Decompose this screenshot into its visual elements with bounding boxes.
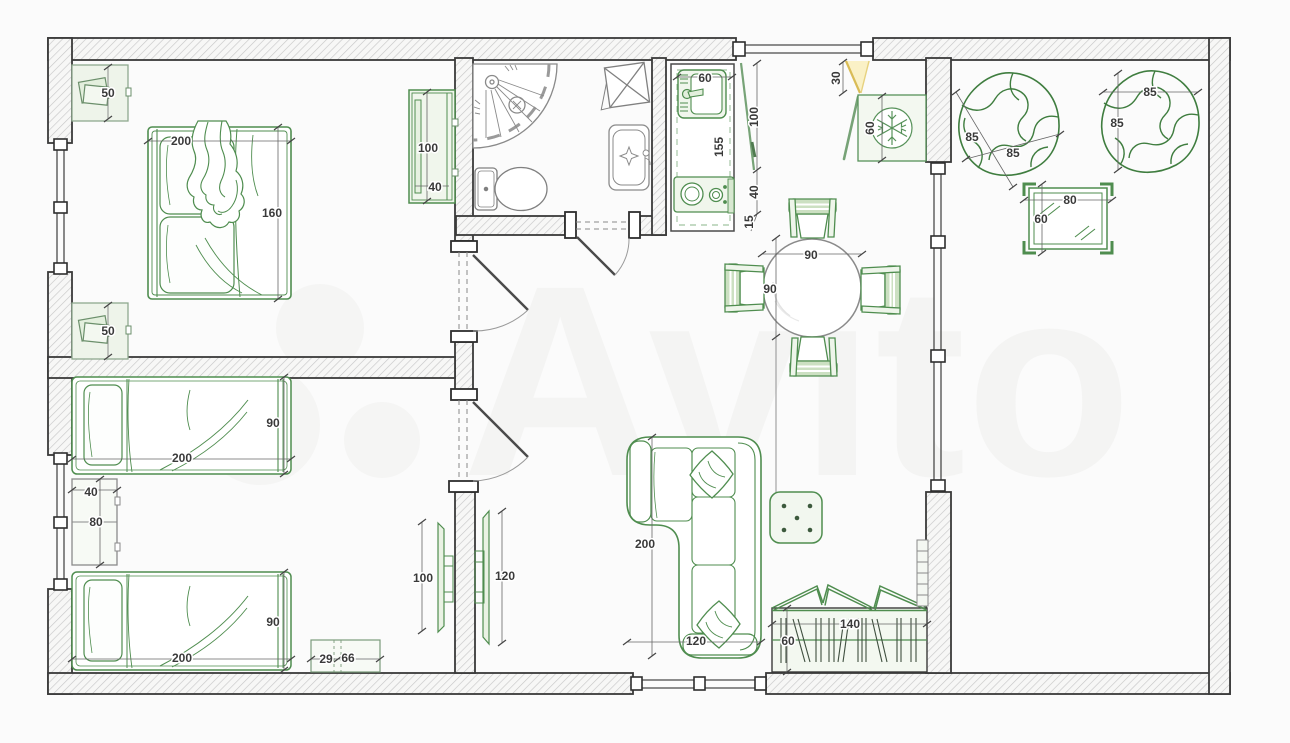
svg-text:200: 200 <box>171 134 191 148</box>
svg-text:200: 200 <box>172 451 192 465</box>
svg-text:120: 120 <box>495 569 515 583</box>
svg-text:85: 85 <box>965 130 979 144</box>
svg-text:66: 66 <box>341 651 355 665</box>
svg-text:80: 80 <box>1063 193 1077 207</box>
svg-text:40: 40 <box>747 185 761 199</box>
svg-text:30: 30 <box>829 71 843 85</box>
svg-text:85: 85 <box>1110 116 1124 130</box>
svg-text:50: 50 <box>101 86 115 100</box>
svg-text:90: 90 <box>804 248 818 262</box>
svg-text:155: 155 <box>712 137 726 157</box>
svg-text:120: 120 <box>686 634 706 648</box>
svg-text:90: 90 <box>266 615 280 629</box>
svg-text:15: 15 <box>742 215 756 229</box>
svg-text:85: 85 <box>1143 85 1157 99</box>
svg-text:60: 60 <box>781 634 795 648</box>
svg-text:60: 60 <box>863 121 877 135</box>
svg-text:60: 60 <box>698 71 712 85</box>
svg-text:40: 40 <box>84 485 98 499</box>
svg-text:29: 29 <box>319 652 333 666</box>
svg-text:100: 100 <box>418 141 438 155</box>
svg-text:100: 100 <box>747 107 761 127</box>
svg-text:140: 140 <box>840 617 860 631</box>
svg-text:100: 100 <box>413 571 433 585</box>
svg-text:160: 160 <box>262 206 282 220</box>
svg-text:50: 50 <box>101 324 115 338</box>
svg-text:200: 200 <box>172 651 192 665</box>
svg-text:90: 90 <box>763 282 777 296</box>
svg-text:90: 90 <box>266 416 280 430</box>
svg-text:200: 200 <box>635 537 655 551</box>
svg-text:40: 40 <box>428 180 442 194</box>
svg-text:85: 85 <box>1006 146 1020 160</box>
svg-text:60: 60 <box>1034 212 1048 226</box>
svg-text:80: 80 <box>89 515 103 529</box>
